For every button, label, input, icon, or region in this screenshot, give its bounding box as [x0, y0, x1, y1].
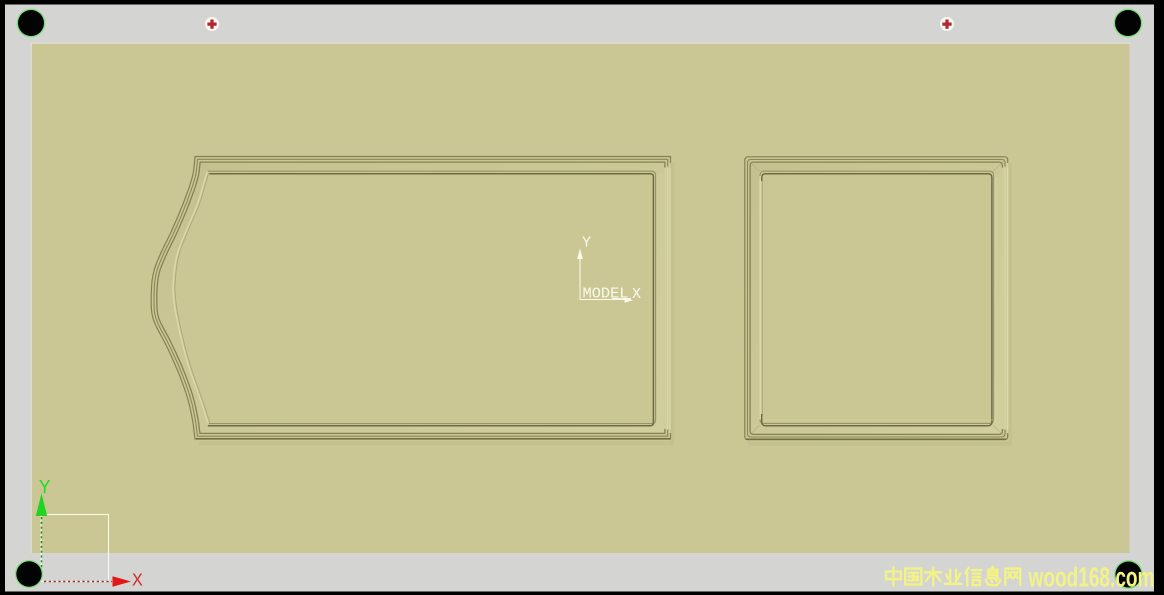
svg-text:MODEL: MODEL [583, 286, 629, 303]
svg-text:X: X [132, 572, 143, 592]
svg-text:Y: Y [582, 235, 591, 252]
svg-text:Y: Y [39, 477, 51, 499]
svg-text:X: X [632, 286, 641, 303]
svg-text:wood168.com: wood168.com [1028, 562, 1155, 593]
